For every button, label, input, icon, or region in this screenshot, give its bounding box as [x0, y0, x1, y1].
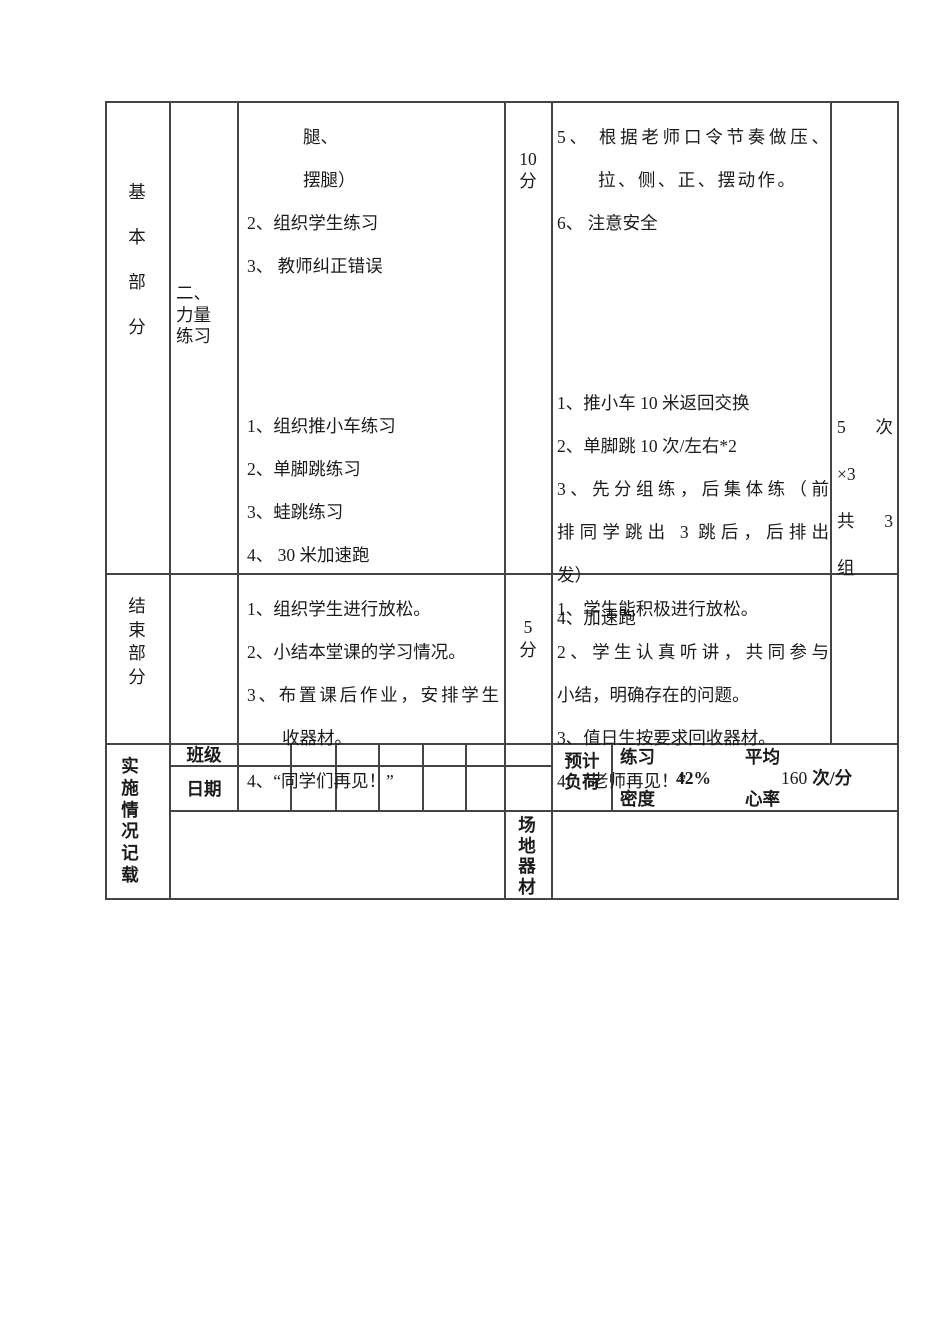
teaching-line: 1、组织学生进行放松。: [247, 599, 499, 621]
date-fill-cell-7[interactable]: [506, 767, 551, 810]
requirement-line: 2、单脚跳 10 次/左右*2: [557, 436, 829, 458]
teaching-line: 3、布置课后作业，安排学生: [247, 685, 499, 707]
requirements-content-top: 5、 根据老师口令节奏做压、 拉、侧、正、摆动作。 6、 注意安全: [557, 105, 829, 256]
section-label-basic-part: 基 本 部 分: [126, 170, 148, 350]
requirement-line: 排同学跳出 3 跳后，后排出: [557, 522, 829, 544]
estimated-load-label: 预计 负荷: [553, 751, 611, 793]
activity-label-strength-practice: 二、 力量 练习: [176, 283, 232, 348]
table-border-top: [105, 101, 899, 103]
venue-equipment-area[interactable]: [553, 812, 897, 898]
time-allocation-ending: 5 分: [505, 616, 551, 662]
date-fill-cell-2[interactable]: [292, 767, 335, 810]
teaching-line: 2、单脚跳练习: [247, 459, 499, 481]
avg-heart-rate-value: 160次/分: [781, 768, 852, 790]
load-sets-note: 5 次 ×3 共 3 组: [837, 392, 893, 604]
load-line: ×3: [837, 463, 893, 487]
teaching-line: 2、小结本堂课的学习情况。: [247, 642, 499, 664]
date-fill-cell-4[interactable]: [380, 767, 422, 810]
date-label: 日期: [171, 779, 237, 801]
avg-heart-rate-number: 160: [781, 768, 807, 788]
requirement-line: 1、学生能积极进行放松。: [557, 599, 829, 621]
avg-heart-rate-label-top: 平均: [745, 747, 780, 769]
class-fill-cell-5[interactable]: [424, 745, 465, 765]
section-label-implementation-record: 实 施 情 况 记 载: [119, 756, 141, 887]
col-divider-activity-teaching: [237, 101, 239, 812]
practice-density-label-bottom: 密度: [620, 789, 655, 811]
class-fill-cell-2[interactable]: [292, 745, 335, 765]
teaching-content-bottom: 1、组织推小车练习 2、单脚跳练习 3、蛙跳练习 4、 30 米加速跑: [247, 394, 499, 588]
requirement-line: 5、 根据老师口令节奏做压、: [557, 127, 829, 149]
teaching-line: 3、 教师纠正错误: [247, 256, 499, 278]
requirement-line: 3、值日生按要求回收器材。: [557, 728, 829, 750]
date-fill-cell-6[interactable]: [467, 767, 504, 810]
practice-density-value: 42%: [676, 768, 711, 790]
load-line: 5 次: [837, 416, 893, 440]
load-line: 共 3: [837, 510, 893, 534]
requirement-line: 3、先分组练，后集体练（前: [557, 479, 829, 501]
table-border-bottom: [105, 898, 899, 900]
class-fill-cell-7[interactable]: [506, 745, 551, 765]
class-fill-cell-4[interactable]: [380, 745, 422, 765]
table-border-left: [105, 101, 107, 900]
class-label: 班级: [171, 745, 237, 767]
date-fill-cell-3[interactable]: [337, 767, 378, 810]
requirement-line: 拉、侧、正、摆动作。: [598, 170, 795, 192]
lesson-plan-page: 基 本 部 分 二、 力量 练习 腿、 摆腿） 2、组织学生练习 3、 教师纠正…: [0, 0, 950, 1342]
date-fill-cell-5[interactable]: [424, 767, 465, 810]
practice-density-label-top: 练习: [620, 747, 655, 769]
requirement-line: 6、 注意安全: [557, 213, 829, 235]
time-allocation-basic: 10 分: [505, 148, 551, 192]
teaching-line: 摆腿）: [303, 170, 499, 192]
date-fill-cell-1[interactable]: [239, 767, 290, 810]
teaching-line: 2、组织学生练习: [247, 213, 499, 235]
requirement-line: 小结，明确存在的问题。: [557, 685, 829, 707]
load-line: 组: [837, 557, 893, 581]
teaching-line: 腿、: [303, 127, 499, 149]
teaching-line: 1、组织推小车练习: [247, 416, 499, 438]
record-notes-area[interactable]: [171, 812, 504, 898]
section-label-ending-part: 结 束 部 分: [126, 595, 148, 689]
col-divider-requirements-load: [830, 101, 832, 745]
avg-heart-rate-label-bottom: 心率: [745, 789, 780, 811]
venue-equipment-label: 场 地 器 材: [516, 815, 538, 897]
class-fill-cell-1[interactable]: [239, 745, 290, 765]
teaching-content-top: 腿、 摆腿） 2、组织学生练习 3、 教师纠正错误: [247, 105, 499, 299]
avg-heart-rate-unit: 次/分: [812, 768, 852, 788]
class-fill-cell-3[interactable]: [337, 745, 378, 765]
class-fill-cell-6[interactable]: [467, 745, 504, 765]
table-border-right: [897, 101, 899, 900]
requirement-line: 2、学生认真听讲，共同参与: [557, 642, 829, 664]
teaching-line: 3、蛙跳练习: [247, 502, 499, 524]
requirement-line: 1、推小车 10 米返回交换: [557, 393, 829, 415]
teaching-line: 4、 30 米加速跑: [247, 545, 499, 567]
